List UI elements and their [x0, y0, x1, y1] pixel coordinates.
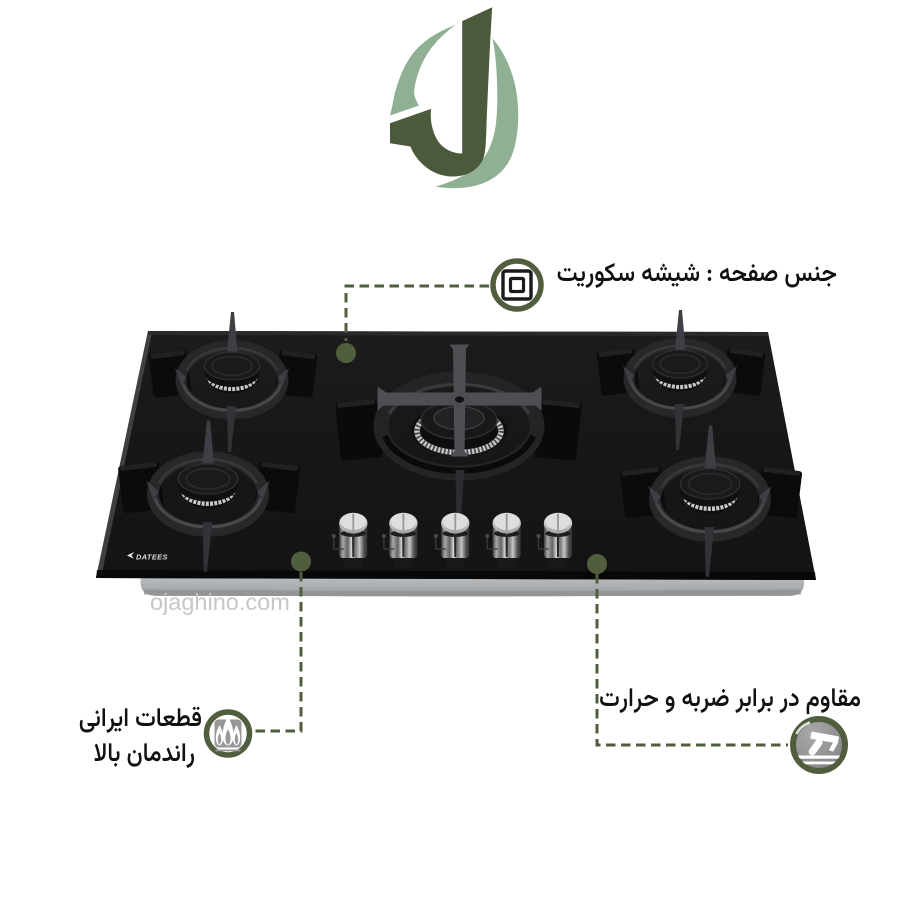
svg-text:ojaghino.com: ojaghino.com	[150, 589, 290, 615]
svg-text:DATEES: DATEES	[136, 553, 168, 562]
